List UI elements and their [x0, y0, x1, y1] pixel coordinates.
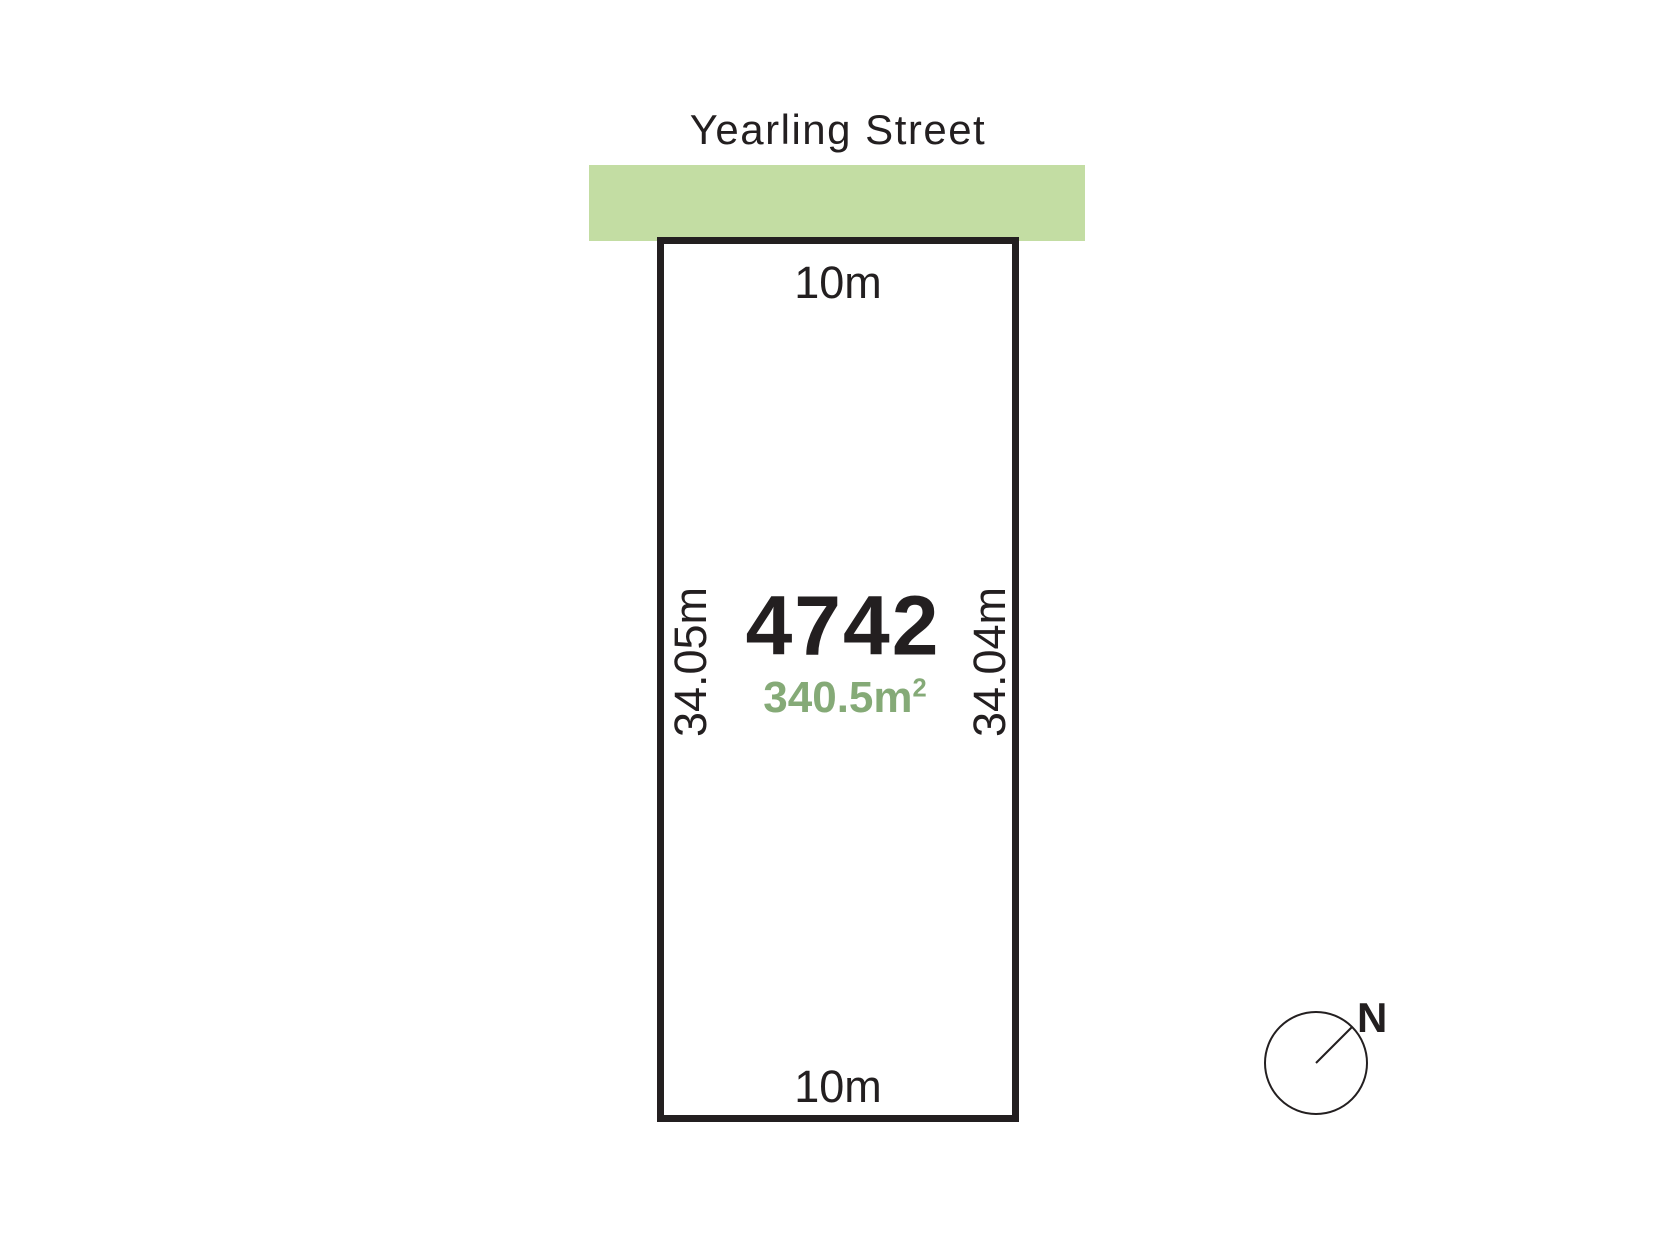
compass-needle: [1316, 1027, 1352, 1063]
lot-area-value: 340.5m: [763, 673, 912, 722]
lot-plan-canvas: Yearling Street 10m 4742 340.5m2 34.05m …: [0, 0, 1669, 1252]
street-name-label: Yearling Street: [690, 106, 986, 154]
compass: N: [1256, 993, 1401, 1118]
frontage-top-dimension: 10m: [794, 257, 882, 309]
depth-left-dimension: 34.05m: [665, 587, 717, 737]
depth-right-dimension: 34.04m: [964, 587, 1016, 737]
lot-number: 4742: [746, 578, 941, 675]
frontage-bottom-dimension: 10m: [794, 1061, 882, 1113]
street-road-bar: [589, 165, 1085, 241]
north-label: N: [1357, 994, 1387, 1041]
lot-area-superscript: 2: [913, 674, 927, 702]
lot-area: 340.5m2: [763, 673, 926, 723]
